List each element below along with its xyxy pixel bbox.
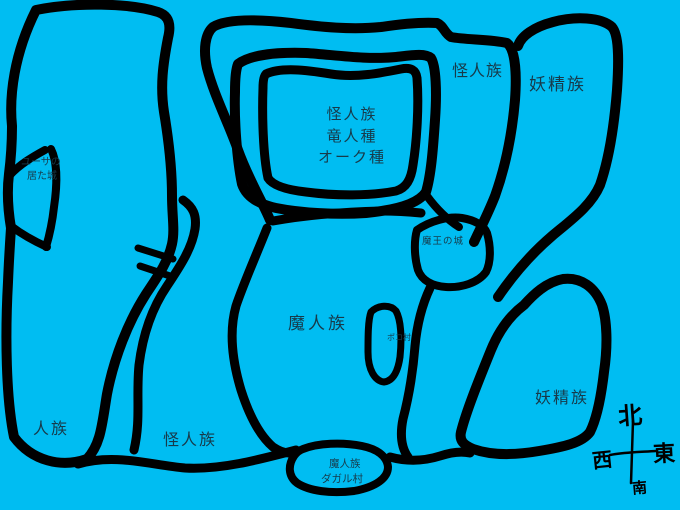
label-jinzoku: 人族 — [33, 420, 69, 438]
label-ring-race-3: オーク種 — [318, 149, 386, 166]
label-kaijin-north: 怪人族 — [452, 62, 503, 80]
label-ring-race-1: 怪人族 — [326, 106, 377, 123]
compass-north-label: 北 — [617, 395, 643, 432]
label-poko-village: ポコ村 — [387, 333, 411, 342]
compass-east-label: 東 — [652, 435, 676, 468]
hand-drawn-fantasy-map: 怪人族 竜人種 オーク種 怪人族 妖精族 ユーサの 居た城 魔王の城 魔人族 ポ… — [0, 0, 680, 510]
compass-west-label: 西 — [591, 443, 614, 474]
label-ring-race-2: 竜人種 — [326, 128, 377, 145]
label-yousei-north: 妖精族 — [529, 76, 586, 96]
label-yousei-south: 妖精族 — [535, 389, 589, 407]
label-maou-castle: 魔王の城 — [422, 237, 464, 248]
label-yusa-castle-line1: ユーサの — [21, 157, 61, 169]
label-dagal-line2: ダガル村 — [321, 473, 363, 485]
label-majin-center: 魔人族 — [288, 315, 348, 335]
label-kaijin-south: 怪人族 — [163, 431, 217, 449]
compass-south-label: 南 — [631, 476, 648, 498]
label-yusa-castle-line2: 居た城 — [27, 171, 57, 183]
label-dagal-line1: 魔人族 — [329, 458, 361, 470]
